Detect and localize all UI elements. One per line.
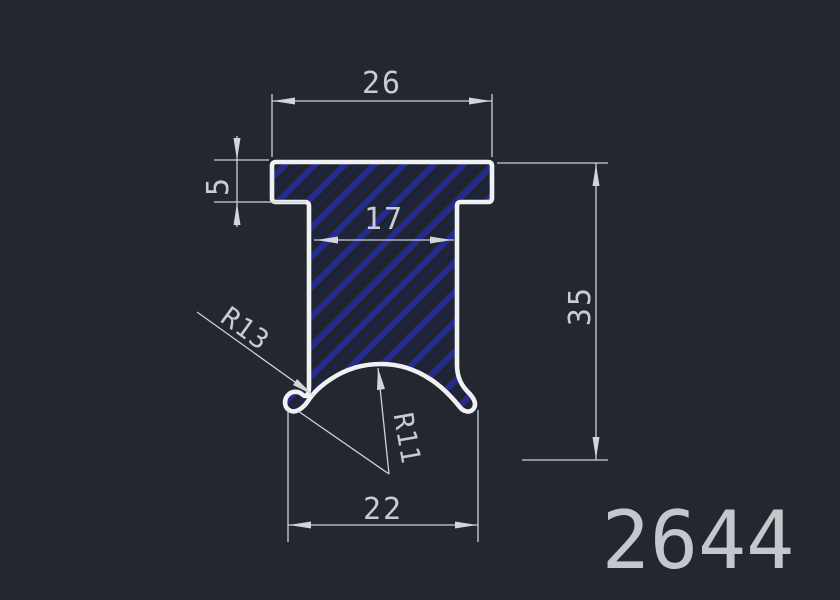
- arrowhead: [234, 203, 241, 225]
- dim-label-outer-radius: R13: [215, 301, 275, 357]
- radius-construction-line: [298, 411, 389, 474]
- arrowhead: [234, 138, 241, 160]
- leader-outer-radius: R13: [197, 301, 313, 395]
- part-number: 2644: [602, 494, 795, 587]
- dim-label-top-width: 26: [362, 66, 402, 101]
- cad-viewport: 26 5 17 35 22 R13: [0, 0, 840, 600]
- dimension-bottom-width: 22: [288, 410, 478, 542]
- dim-label-groove-radius: R11: [387, 410, 427, 466]
- dim-label-bottom-width: 22: [363, 492, 403, 527]
- dimension-overall-height: 35: [497, 163, 608, 460]
- profile-section: [272, 162, 492, 412]
- profile-outline: [272, 162, 492, 412]
- arrowhead: [455, 522, 477, 529]
- cad-drawing: 26 5 17 35 22 R13: [0, 0, 840, 600]
- dim-label-stem-width: 17: [364, 202, 404, 237]
- dimension-top-width: 26: [272, 66, 492, 157]
- arrowhead: [377, 368, 385, 390]
- arrowhead: [289, 522, 311, 529]
- arrowhead: [469, 98, 491, 105]
- arrowhead: [593, 164, 600, 186]
- dim-label-flange-thickness: 5: [201, 176, 236, 196]
- dim-label-overall-height: 35: [563, 286, 598, 326]
- arrowhead: [273, 98, 295, 105]
- arrowhead: [593, 437, 600, 459]
